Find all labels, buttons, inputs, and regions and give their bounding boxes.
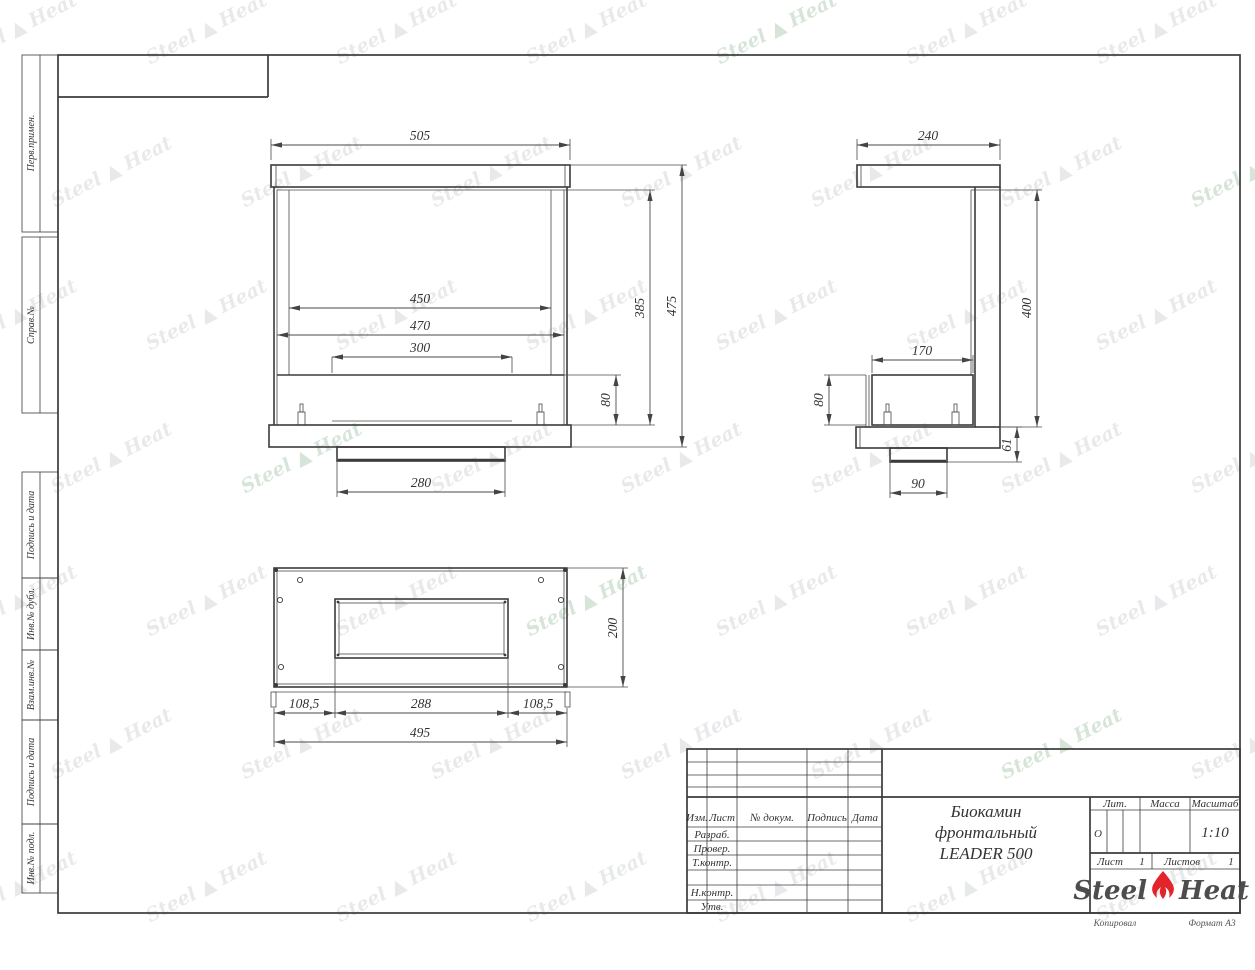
front-clip-right bbox=[537, 404, 544, 425]
lit-label: Лит. bbox=[1102, 798, 1127, 810]
stamp-inv-dubl: Инв.№ дубл. bbox=[26, 588, 37, 641]
th-sign: Подпись bbox=[806, 812, 847, 824]
lit-value: О bbox=[1094, 828, 1102, 840]
stamp-podpis-data-2: Подпись и дата bbox=[26, 738, 37, 808]
row-ncontrol: Н.контр. bbox=[690, 887, 734, 899]
scale-label: Масштаб bbox=[1191, 798, 1239, 810]
row-checked: Провер. bbox=[693, 843, 731, 855]
logo-steel: Steel bbox=[1073, 876, 1147, 906]
side-view: 240 400 170 80 61 90 bbox=[811, 128, 1042, 498]
row-developed: Разраб. bbox=[693, 829, 729, 841]
dim-side-burner-depth: 170 bbox=[912, 343, 933, 358]
left-stamp-column: Перв.примен. Справ.№ Подпись и дата Инв.… bbox=[22, 55, 58, 893]
drawing-canvas: Перв.примен. Справ.№ Подпись и дата Инв.… bbox=[0, 0, 1255, 970]
stamp-podpis-data-1: Подпись и дата bbox=[26, 491, 37, 561]
title-block: Изм. Лист № докум. Подпись Дата Разраб. … bbox=[685, 749, 1249, 929]
stamp-perv-primen: Перв.примен. bbox=[26, 115, 37, 173]
logo-heat: Heat bbox=[1178, 876, 1249, 906]
front-dimensions: 505 450 470 300 80 385 475 bbox=[271, 128, 687, 497]
dim-front-overall-width: 505 bbox=[410, 128, 431, 143]
th-doc: № докум. bbox=[749, 812, 794, 824]
dim-front-tray-width: 280 bbox=[411, 475, 432, 490]
dim-bottom-overall-length: 495 bbox=[410, 725, 431, 740]
doc-title-line2: фронтальный bbox=[935, 823, 1038, 842]
bottom-view: 200 108,5 288 108,5 495 bbox=[271, 568, 628, 747]
stamp-sprav-no: Справ.№ bbox=[26, 306, 37, 344]
hole bbox=[558, 597, 563, 602]
dim-side-depth: 240 bbox=[918, 128, 939, 143]
dim-front-overall-height: 475 bbox=[664, 296, 679, 317]
drawing-frame bbox=[58, 55, 1240, 913]
th-date: Дата bbox=[851, 812, 879, 824]
sheet-value: 1 bbox=[1139, 856, 1145, 868]
stamp-inv-podl: Инв.№ подл. bbox=[26, 832, 37, 886]
dim-side-tray-depth: 90 bbox=[911, 476, 925, 491]
hole bbox=[558, 664, 563, 669]
th-izm: Изм. bbox=[685, 812, 708, 824]
dim-side-body-height: 400 bbox=[1019, 298, 1034, 319]
doc-title-line1: Биокамин bbox=[950, 802, 1022, 821]
dim-bottom-right-offset: 108,5 bbox=[523, 696, 554, 711]
scale-value: 1:10 bbox=[1201, 825, 1229, 841]
front-view: 505 450 470 300 80 385 475 bbox=[269, 128, 687, 497]
hole bbox=[538, 577, 543, 582]
hole bbox=[277, 597, 282, 602]
dim-front-frame-width: 470 bbox=[410, 318, 431, 333]
sheet-label: Лист bbox=[1096, 856, 1123, 868]
side-dimensions: 240 400 170 80 61 90 bbox=[811, 128, 1042, 498]
mass-label: Масса bbox=[1149, 798, 1180, 810]
sheets-value: 1 bbox=[1228, 856, 1234, 868]
dim-bottom-depth: 200 bbox=[605, 618, 620, 639]
dim-front-inner-height: 385 bbox=[632, 298, 647, 320]
th-list: Лист bbox=[708, 812, 735, 824]
dim-front-opening-width: 450 bbox=[410, 291, 431, 306]
copied-label: Копировал bbox=[1093, 919, 1137, 929]
side-clip-left bbox=[884, 404, 891, 425]
drawing-sheet: Steel ▲ HeatSteel ▲ HeatSteel ▲ HeatStee… bbox=[0, 0, 1255, 970]
dim-side-base-height: 61 bbox=[999, 438, 1014, 452]
sheets-label: Листов bbox=[1163, 856, 1200, 868]
row-tcontrol: Т.контр. bbox=[692, 857, 732, 869]
dim-bottom-left-offset: 108,5 bbox=[289, 696, 320, 711]
dim-bottom-slot-length: 288 bbox=[411, 696, 432, 711]
row-approved: Утв. bbox=[701, 901, 724, 913]
dim-front-burner-height: 80 bbox=[598, 393, 613, 407]
stamp-vzam-inv: Взам.инв.№ bbox=[26, 660, 37, 710]
hole bbox=[297, 577, 302, 582]
hole bbox=[278, 664, 283, 669]
side-clip-right bbox=[952, 404, 959, 425]
steelheat-logo: Steel Heat bbox=[1073, 871, 1249, 906]
dim-front-slot-width: 300 bbox=[409, 340, 431, 355]
dim-side-burner-height: 80 bbox=[811, 393, 826, 407]
flame-icon bbox=[1152, 871, 1174, 899]
format-label: Формат А3 bbox=[1188, 919, 1236, 929]
doc-title-line3: LEADER 500 bbox=[938, 844, 1033, 863]
front-clip-left bbox=[298, 404, 305, 425]
